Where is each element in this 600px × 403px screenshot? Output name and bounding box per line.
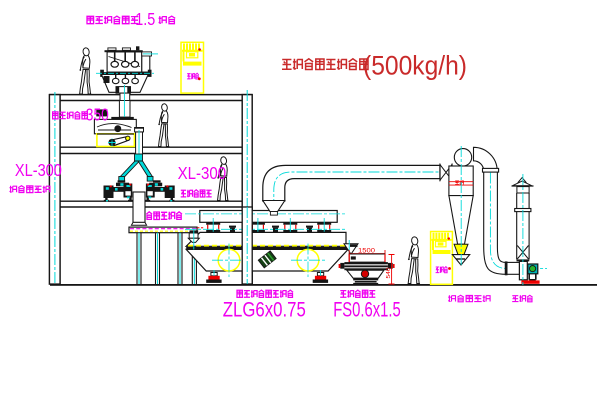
svg-text:XL-300: XL-300 — [178, 163, 227, 183]
svg-text:(500kg/h): (500kg/h) — [363, 51, 467, 81]
svg-text:ZLG6x0.75: ZLG6x0.75 — [223, 298, 306, 321]
svg-text:FS0.6x1.5: FS0.6x1.5 — [333, 298, 401, 321]
svg-text:540: 540 — [386, 268, 392, 279]
svg-text:XL-300: XL-300 — [15, 160, 62, 180]
svg-text:350: 350 — [86, 104, 109, 124]
svg-text:1.5: 1.5 — [135, 9, 155, 29]
